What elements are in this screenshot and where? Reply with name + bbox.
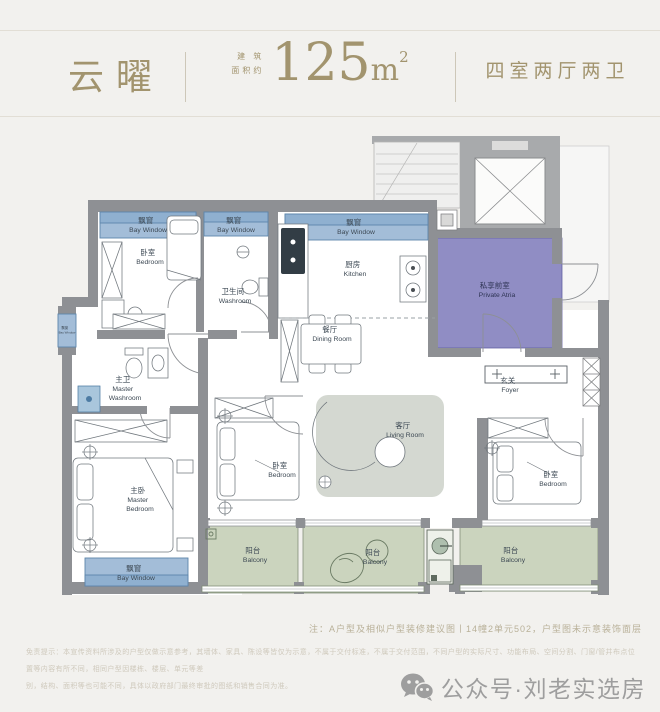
- layout-type: 四室两厅两卫: [455, 56, 660, 83]
- plan-note: 注：A户型及相似户型装修建议图丨14幢2单元502，户型图未示意装饰面层: [309, 622, 642, 635]
- area-label-line1: 建 筑: [231, 50, 264, 64]
- wechat-icon: [400, 672, 434, 702]
- area-block: 建 筑 面积约 125m2: [185, 40, 455, 88]
- staircase: [372, 136, 462, 208]
- area-value: 125m2: [271, 40, 408, 88]
- header-bottom-rule: [0, 116, 660, 117]
- elevator: [460, 136, 560, 240]
- wechat-account-label: 公众号·刘老实选房: [441, 670, 646, 704]
- foyer-cabinet: [485, 366, 567, 383]
- floor-plan: 飘窗 Bay Window 飘窗 Bay Window 飘窗 Bay Windo…: [45, 130, 615, 630]
- project-title: 云曜: [68, 48, 164, 100]
- area-label-line2: 面积约: [231, 64, 264, 78]
- dining-furniture: [281, 315, 361, 382]
- area-label: 建 筑 面积约: [231, 50, 264, 77]
- wechat-watermark: 公众号·刘老实选房: [400, 670, 646, 704]
- laundry-unit: [427, 530, 453, 584]
- corridor-outline: [557, 146, 609, 302]
- header-top-rule: [0, 30, 660, 31]
